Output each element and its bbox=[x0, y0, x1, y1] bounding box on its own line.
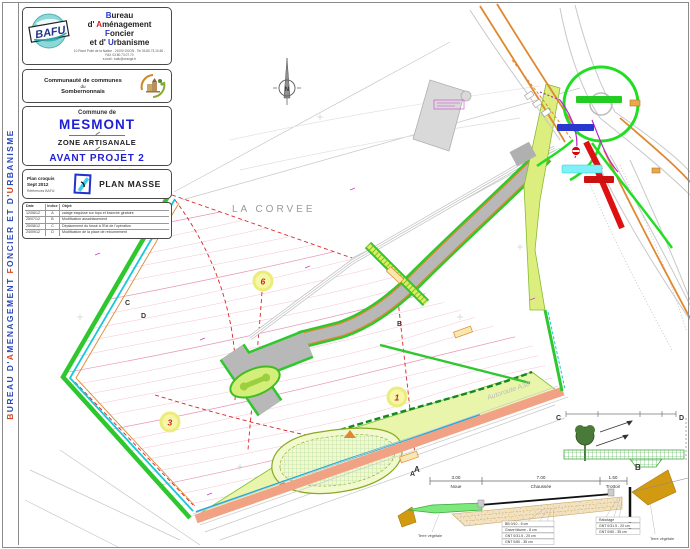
plan-sheet: Autoroute A38 bbox=[0, 0, 690, 549]
firm-title-block: BAFU Bureau d' Aménagement Foncier et d'… bbox=[22, 7, 172, 65]
revision-row: 12/06/12 A calage esquisse sur topo et b… bbox=[25, 210, 169, 217]
revision-row: 24/09/12 D Modification de la place de r… bbox=[25, 229, 169, 236]
plan-masse-logo bbox=[73, 173, 93, 195]
firm-line-3: Foncier bbox=[72, 29, 167, 38]
plan-info-block: Plan croquis Sept 2012 Références BAFU: … bbox=[22, 169, 172, 199]
firm-line-4: et d' Urbanisme bbox=[72, 38, 167, 47]
revision-row: 25/07/12 B Modification assainissement bbox=[25, 216, 169, 223]
bafu-logo: BAFU bbox=[26, 11, 72, 55]
firm-title-text: Bureau d' Aménagement Foncier et d' Urba… bbox=[72, 11, 167, 61]
firm-address: 10 Rond Point de la Nation - 21000 DIJON… bbox=[72, 49, 167, 61]
firm-line-2: d' Aménagement bbox=[72, 20, 167, 29]
sidebar-firm-name: BUREAU D'AMENAGEMENT FONCIER ET D'URBANI… bbox=[2, 3, 18, 546]
revision-row: 25/08/12 C Déplacement du fossé à l'Est … bbox=[25, 223, 169, 230]
project-title-block: Commune de MESMONT ZONE ARTISANALE AVANT… bbox=[22, 106, 172, 166]
community-logo bbox=[139, 72, 167, 100]
plan-meta: Plan croquis Sept 2012 Références BAFU: bbox=[27, 176, 73, 193]
firm-line-1: Bureau bbox=[72, 11, 167, 20]
community-name: Communauté de communes du Sombernonnais bbox=[27, 78, 139, 95]
commune-label: Commune de bbox=[23, 110, 171, 116]
commune-name: MESMONT bbox=[23, 117, 171, 132]
revision-table: Date Indice Objet: 12/06/12 A calage esq… bbox=[22, 202, 172, 239]
plan-title: PLAN MASSE bbox=[93, 179, 167, 189]
community-block: Communauté de communes du Sombernonnais bbox=[22, 69, 172, 103]
firm-email: e-mail : bafu@orange.fr bbox=[103, 57, 137, 61]
divider bbox=[69, 149, 125, 151]
divider bbox=[69, 134, 125, 136]
phase-name: AVANT PROJET 2 bbox=[23, 153, 171, 164]
revision-header-row: Date Indice Objet: bbox=[25, 204, 169, 210]
